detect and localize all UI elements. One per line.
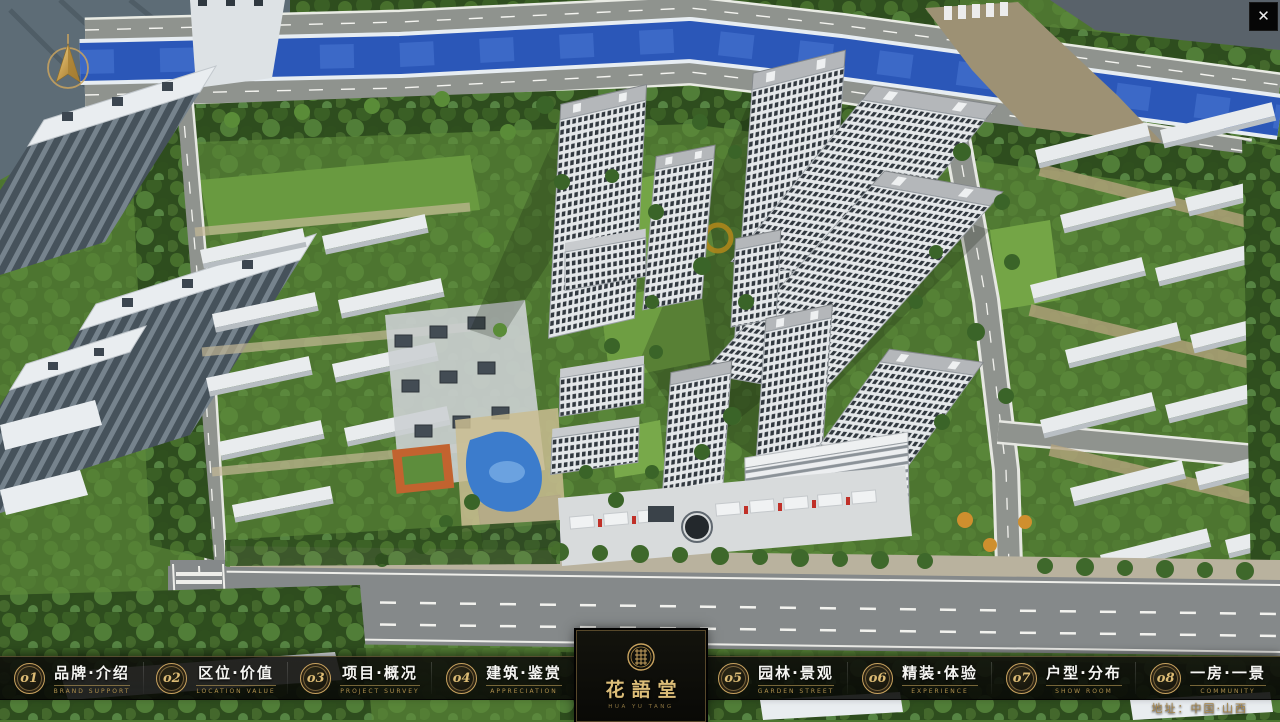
nav-item-landscape[interactable]: o5 园林·景观 GARDEN STREET [704, 657, 848, 699]
nav-item-room-view[interactable]: o8 一房·一景 COMMUNITY [1136, 657, 1280, 699]
nav-item-subtitle: GARDEN STREET [758, 685, 835, 695]
pool-area [455, 408, 566, 532]
nav-item-subtitle: PROJECT SURVEY [340, 685, 419, 695]
nav-item-title: 区位·价值 [198, 662, 274, 683]
nav-group-right: o5 园林·景观 GARDEN STREET o6 精装·体验 EXPERIEN… [704, 657, 1280, 699]
nav-number-badge: o5 [718, 663, 749, 694]
nav-item-title: 品牌·介绍 [54, 662, 130, 683]
nav-item-title: 精装·体验 [902, 662, 978, 683]
nav-item-subtitle: SHOW ROOM [1046, 685, 1122, 695]
nav-number-badge: o4 [446, 663, 477, 694]
nav-item-architecture[interactable]: o4 建筑·鉴赏 APPRECIATION [432, 657, 576, 699]
nav-item-title: 项目·概况 [342, 662, 418, 683]
logo-seal-icon [626, 642, 656, 672]
nav-item-subtitle: APPRECIATION [486, 685, 562, 695]
nav-item-title: 一房·一景 [1190, 662, 1266, 683]
project-logo-tagline: HUA YU TANG [608, 704, 673, 710]
nav-item-project-overview[interactable]: o3 项目·概况 PROJECT SURVEY [288, 657, 432, 699]
project-address: 地址：中国·山西 [1152, 700, 1249, 716]
nav-item-subtitle: BRAND SUPPORT [54, 685, 131, 695]
orange-building [392, 444, 454, 494]
nav-number-badge: o6 [862, 663, 893, 694]
project-logo-name: 花語堂 [598, 675, 683, 702]
logo-panel[interactable]: 花語堂 HUA YU TANG [576, 630, 706, 722]
nav-item-title: 建筑·鉴赏 [486, 662, 562, 683]
nav-item-subtitle: COMMUNITY [1190, 685, 1266, 695]
nav-number-badge: o3 [300, 663, 331, 694]
nav-number-badge: o2 [156, 663, 187, 694]
nav-number-badge: o8 [1150, 663, 1181, 694]
nav-item-interior-experience[interactable]: o6 精装·体验 EXPERIENCE [848, 657, 992, 699]
aerial-masterplan-render [0, 0, 1280, 720]
nav-item-title: 园林·景观 [758, 662, 834, 683]
nav-number-badge: o1 [14, 663, 45, 694]
nav-number-badge: o7 [1006, 663, 1037, 694]
nav-group-left: o1 品牌·介绍 BRAND SUPPORT o2 区位·价值 LOCATION… [0, 657, 576, 699]
nav-item-brand-intro[interactable]: o1 品牌·介绍 BRAND SUPPORT [0, 657, 144, 699]
nav-item-subtitle: LOCATION VALUE [196, 685, 275, 695]
nav-item-floorplan-distribution[interactable]: o7 户型·分布 SHOW ROOM [992, 657, 1136, 699]
close-button[interactable]: ✕ [1249, 2, 1278, 31]
nav-item-title: 户型·分布 [1046, 662, 1122, 683]
nav-item-subtitle: EXPERIENCE [902, 685, 978, 695]
nav-item-location-value[interactable]: o2 区位·价值 LOCATION VALUE [144, 657, 288, 699]
